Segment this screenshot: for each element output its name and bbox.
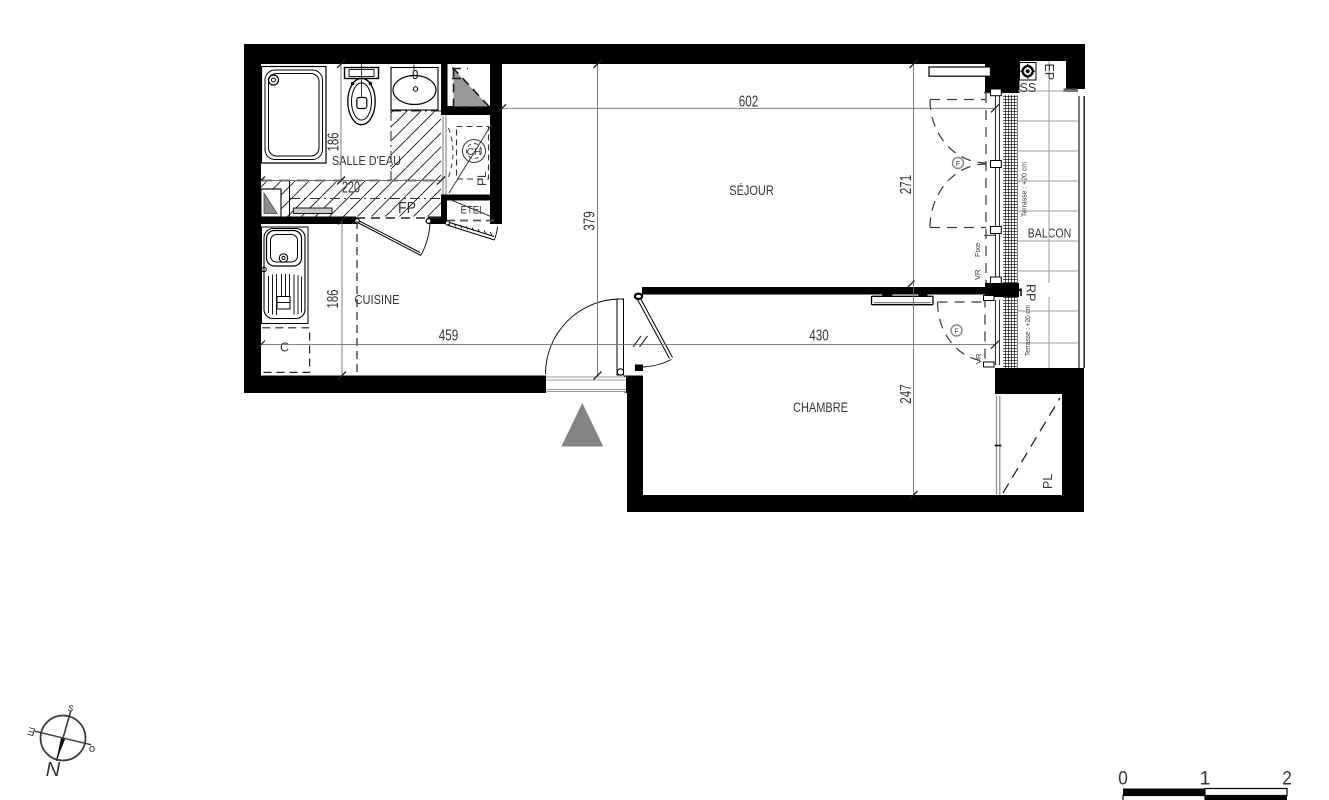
svg-text:430: 430 (809, 328, 829, 345)
svg-text:N: N (46, 759, 61, 781)
svg-text:ETEL: ETEL (461, 205, 485, 217)
svg-text:220: 220 (342, 180, 360, 197)
svg-text:E: E (26, 724, 36, 738)
svg-text:1: 1 (1200, 768, 1211, 790)
svg-text:247: 247 (898, 384, 915, 404)
svg-text:186: 186 (325, 289, 342, 308)
svg-text:C: C (280, 341, 289, 355)
svg-text:EP: EP (1042, 64, 1056, 81)
svg-text:CHAMBRE: CHAMBRE (793, 400, 848, 415)
svg-text:CUISINE: CUISINE (355, 292, 400, 307)
svg-text:Terrasse : +20 cm: Terrasse : +20 cm (1020, 162, 1029, 217)
svg-text:SS: SS (1020, 81, 1037, 95)
svg-text:SÉJOUR: SÉJOUR (729, 183, 774, 198)
svg-text:CH: CH (467, 147, 481, 158)
svg-text:Terrasse : +20 cm: Terrasse : +20 cm (1023, 305, 1032, 356)
svg-text:0: 0 (1118, 768, 1128, 790)
svg-text:SALLE D'EAU: SALLE D'EAU (332, 153, 401, 168)
svg-text:2: 2 (1282, 768, 1292, 790)
svg-text:VR: VR (973, 269, 982, 280)
svg-text:s: s (67, 702, 76, 715)
svg-text:F: F (956, 161, 960, 168)
svg-text:Fixe: Fixe (973, 243, 982, 257)
svg-text:271: 271 (898, 175, 915, 195)
svg-text:379: 379 (582, 211, 599, 231)
svg-text:VR: VR (974, 353, 983, 364)
svg-text:o: o (89, 743, 95, 755)
svg-text:459: 459 (439, 328, 459, 345)
svg-text:PL: PL (475, 171, 489, 186)
svg-text:F: F (954, 329, 958, 336)
svg-text:FP: FP (398, 200, 416, 217)
svg-text:PL: PL (1041, 474, 1055, 489)
svg-text:RP: RP (1024, 284, 1038, 301)
svg-text:186: 186 (326, 132, 343, 151)
svg-text:602: 602 (739, 94, 759, 111)
